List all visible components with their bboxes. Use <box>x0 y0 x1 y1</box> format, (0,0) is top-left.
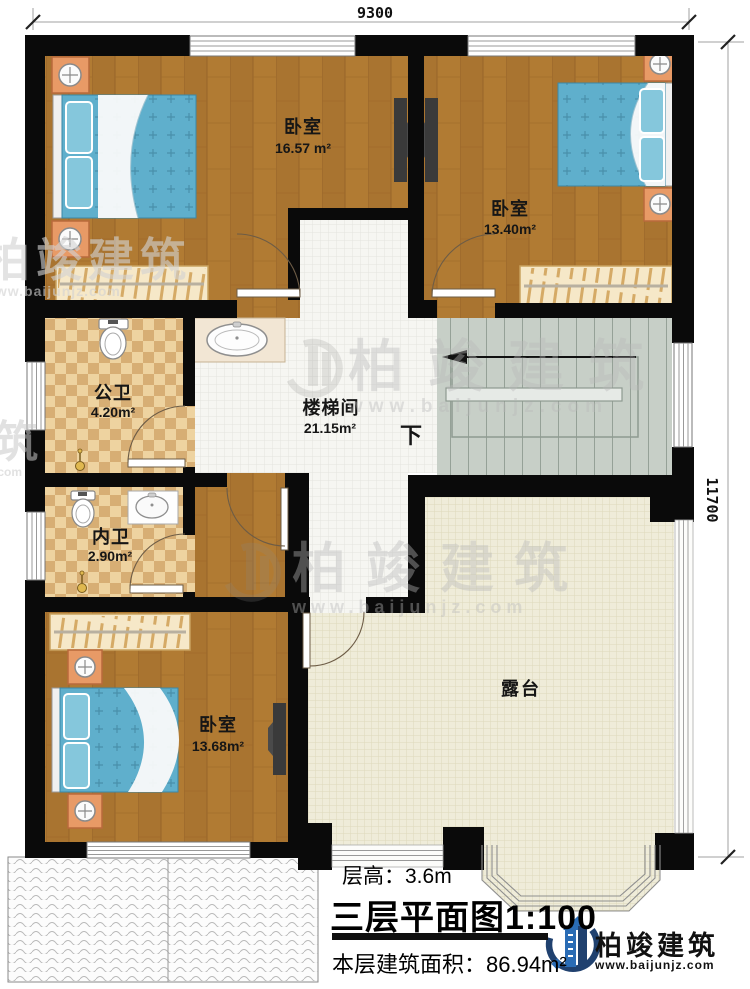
nightstand-icon <box>644 188 676 221</box>
floor-plan-drawing <box>0 0 750 989</box>
stairs-down-label: 下 <box>400 418 422 450</box>
washbasin-icon <box>128 491 178 524</box>
window <box>190 36 355 56</box>
dimension-label-top: 9300 <box>357 4 393 22</box>
nightstand-icon <box>52 57 89 93</box>
wardrobe-icon <box>50 614 190 650</box>
nightstand-icon <box>68 650 102 684</box>
roof-tiles <box>8 857 318 982</box>
room-label-terrace: 露台 <box>501 675 541 701</box>
floor-area-label: 本层建筑面积：86.94m² <box>332 947 567 979</box>
room-label-public-bath: 公卫 <box>94 379 132 405</box>
room-area-bedroom-top-left: 16.57 m² <box>275 140 331 156</box>
window <box>27 512 45 580</box>
wardrobe-icon <box>56 266 208 302</box>
wardrobe-icon <box>520 266 672 306</box>
title-underline <box>332 933 548 940</box>
window <box>674 343 692 447</box>
dimension-line-right <box>698 35 744 864</box>
room-area-public-bath: 4.20m² <box>91 404 135 420</box>
toilet-icon <box>99 319 128 359</box>
floor-plan: 9300 11700 卧室 16.57 m² 卧室 13.40m² 公卫 4.2… <box>0 0 750 989</box>
brand-logo: 柏竣建筑 www.baijunjz.com <box>540 898 750 989</box>
room-label-stairwell: 楼梯间 <box>303 394 360 420</box>
brand-website: www.baijunjz.com <box>595 958 715 972</box>
room-label-inner-bath: 内卫 <box>92 523 130 549</box>
nightstand-icon <box>52 221 89 257</box>
toilet-icon <box>71 491 95 527</box>
window <box>27 362 45 430</box>
room-area-stairwell: 21.15m² <box>304 420 356 436</box>
dimension-label-right: 11700 <box>703 477 721 522</box>
room-area-bedroom-top-right: 13.40m² <box>484 221 536 237</box>
bed-icon <box>53 95 196 218</box>
room-area-bedroom-bottom: 13.68m² <box>192 738 244 754</box>
room-area-inner-bath: 2.90m² <box>88 548 132 564</box>
room-label-bedroom-bottom: 卧室 <box>199 711 237 737</box>
nightstand-icon <box>68 794 102 828</box>
bed-icon <box>558 83 675 186</box>
floor-height-label: 层高：3.6m <box>342 860 452 890</box>
vanity-sink-icon <box>190 318 285 362</box>
plan-title-text: 三层平面图 <box>330 899 505 937</box>
room-label-bedroom-top-right: 卧室 <box>491 195 529 221</box>
window <box>468 36 635 56</box>
bed-icon <box>52 688 179 792</box>
room-label-bedroom-top-left: 卧室 <box>284 113 322 139</box>
window <box>87 842 250 858</box>
